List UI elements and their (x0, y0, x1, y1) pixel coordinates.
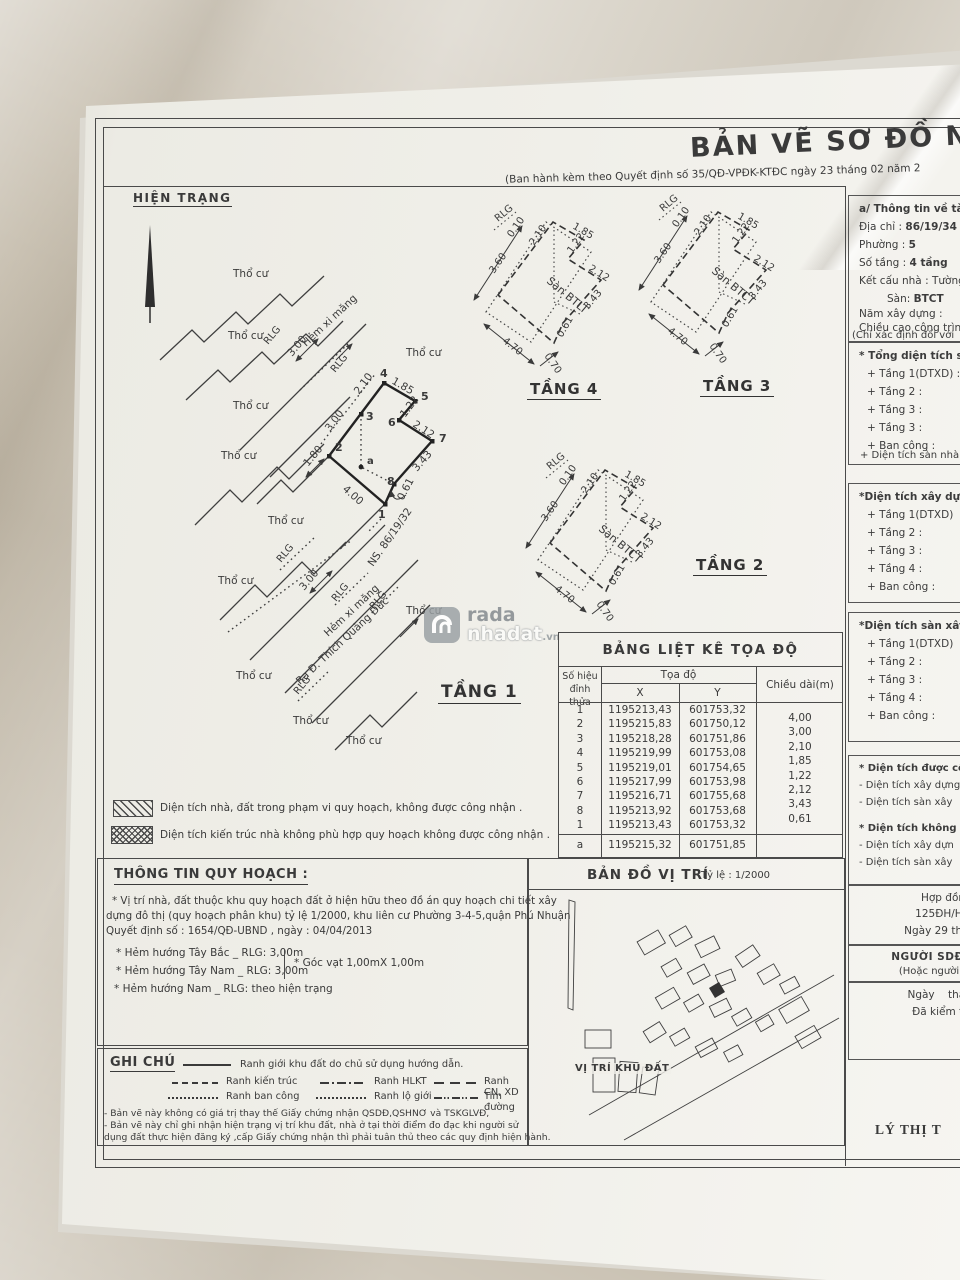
map-site-label: VỊ TRÍ KHU ĐẤT (573, 1063, 671, 1074)
col-header-len: Chiều dài(m) (756, 679, 844, 691)
watermark: rada nhadat.vn (424, 606, 560, 644)
svg-text:3.60: 3.60 (487, 251, 509, 276)
svg-text:RLG: RLG (262, 324, 283, 347)
land-use-labels: Thổ cư Thổ cư Thổ cư Thổ cư Thổ cư Thổ c… (217, 267, 443, 747)
watermark-logo-icon (424, 607, 460, 643)
s5-title: * Diện tích không đ (859, 820, 960, 837)
north-arrow-icon (145, 225, 155, 323)
svg-text:2.10: 2.10 (527, 223, 549, 248)
svg-text:7: 7 (439, 432, 447, 445)
s2-title: *Diện tích xây dựng (859, 488, 960, 506)
svg-text:RLG: RLG (275, 542, 296, 565)
svg-text:3.60: 3.60 (652, 241, 674, 266)
quy-hoach-bullet-2: * Hẻm hướng Tây Nam _ RLG: 3,00m (116, 965, 308, 977)
line-sample-dashdot (320, 1082, 366, 1084)
svg-text:Thổ cư: Thổ cư (217, 574, 255, 587)
ghi-chu-note-3: dụng đất thực hiện đăng ký ,cấp Giấy chứ… (104, 1132, 551, 1143)
panel-thong-tin-tai-san: a/ Thông tin về tài sản Địa chỉ : 86/19/… (848, 195, 960, 342)
svg-text:0.70: 0.70 (707, 341, 729, 366)
svg-text:1.22: 1.22 (398, 394, 422, 420)
svg-text:2.12: 2.12 (410, 418, 436, 441)
table-row: 61195217,99601753,98 (559, 776, 756, 790)
table-footer-row: a 1195215,32 601751,85 (559, 839, 756, 851)
line-sample-solid (183, 1064, 231, 1066)
length-values: 4,00 3,00 2,10 1,85 1,22 2,12 3,43 0,61 (756, 712, 844, 827)
ghi-chu-title: GHI CHÚ (110, 1055, 175, 1072)
legend-tim-duong: Tim đường (484, 1091, 527, 1113)
legend-ranh-kien-truc: Ranh kiến trúc (226, 1076, 297, 1087)
table-row: 11195213,43601753,32 (559, 819, 756, 833)
label-tang1: TẦNG 1 (438, 682, 521, 704)
label-tang4: TẦNG 4 (527, 380, 601, 400)
svg-text:Thổ cư: Thổ cư (220, 449, 258, 462)
svg-text:Thổ cư: Thổ cư (235, 669, 273, 682)
panel-cong-nhan: * Diện tích được công - Diện tích xây dự… (848, 755, 960, 885)
svg-text:RLG: RLG (329, 352, 350, 375)
quy-hoach-bullet-3: * Hẻm hướng Nam _ RLG: theo hiện trạng (114, 983, 333, 995)
svg-text:1: 1 (378, 508, 386, 521)
table-rows: 11195213,43601753,32 21195215,83601750,1… (559, 704, 756, 834)
svg-text:Ra Đ. Thích Quảng Đức: Ra Đ. Thích Quảng Đức (294, 595, 392, 687)
line-sample-longdash (434, 1082, 478, 1084)
svg-text:4.00: 4.00 (340, 483, 366, 507)
hatch-sample-2 (111, 826, 153, 844)
svg-text:Sàn BTCT: Sàn BTCT (596, 522, 645, 566)
svg-text:6: 6 (388, 416, 396, 429)
svg-text:0.10: 0.10 (505, 215, 527, 240)
plot-dimensions: 4.00 3.00 2.10 1.85 1.22 2.12 3.43 0.61 … (285, 333, 436, 593)
svg-text:3.00: 3.00 (323, 408, 347, 434)
coordinate-table: BẢNG LIỆT KÊ TỌA ĐỘ Số hiệuđỉnh thửa Tọa… (558, 632, 843, 858)
svg-text:3.43: 3.43 (410, 448, 434, 474)
svg-text:Thổ cư: Thổ cư (405, 346, 443, 359)
map-scale: Tỷ lệ : 1/2000 (701, 870, 770, 881)
panel-nguoi-sdd: NGƯỜI SDĐ,CHỦ (Hoặc người đại d (848, 945, 960, 982)
table-row: 51195219,01601754,65 (559, 762, 756, 776)
panel-dien-tich-san: *Diện tích sàn xây + Tầng 1(DTXD) + Tầng… (848, 612, 960, 742)
svg-text:2.12: 2.12 (586, 263, 611, 284)
svg-text:0.10: 0.10 (670, 205, 692, 230)
svg-text:0.10: 0.10 (557, 463, 579, 488)
panel-hop-dong: Hợp đồn 125ĐH/HĐ Ngày 29 tháng (848, 885, 960, 945)
quy-hoach-bullet-goc-vat: * Góc vạt 1,00mX 1,00m (294, 957, 424, 969)
svg-text:2.10: 2.10 (352, 371, 376, 397)
line-sample-dash (172, 1082, 218, 1084)
svg-text:Sàn BTLT: Sàn BTLT (544, 274, 591, 316)
svg-text:Thổ cư: Thổ cư (292, 714, 330, 727)
panel-tong-dien-tich: * Tổng diện tích sàn + Tầng 1(DTXD) : + … (848, 342, 960, 465)
table-row: 81195213,92601753,68 (559, 805, 756, 819)
check-line-2: Đã kiểm tra (849, 1004, 960, 1021)
svg-text:4.70: 4.70 (552, 584, 576, 606)
hatch-legend-1: Diện tích nhà, đất trong phạm vi quy hoạ… (160, 802, 522, 814)
panel-dien-tich-xay-dung: *Diện tích xây dựng + Tầng 1(DTXD) + Tần… (848, 483, 960, 603)
floor-plan-tang2: 1.85 2.10 1.22 2.12 3.43 0.61 0.70 4.70 … (526, 451, 663, 624)
label-tang2: TẦNG 2 (693, 556, 767, 576)
paper-document: BẢN VẼ SƠ ĐỒ NH (Ban hành kèm theo Quyết… (0, 0, 960, 1280)
legend-ranh-gioi: Ranh giới khu đất do chủ sử dụng hướng d… (240, 1059, 463, 1070)
svg-text:4.70: 4.70 (665, 326, 689, 348)
svg-text:Sàn BTCT: Sàn BTCT (709, 264, 758, 308)
panel-kiem-tra: Ngày tháng Đã kiểm tra (848, 982, 960, 1060)
quy-hoach-box: THÔNG TIN QUY HOẠCH : * Vị trí nhà, đất … (97, 858, 528, 1046)
hatch-sample-1 (113, 800, 153, 817)
s1-footer: + Diện tích sàn nhà (860, 450, 959, 461)
signature-name: LÝ THỊ T (875, 1122, 942, 1138)
svg-text:4.70: 4.70 (500, 336, 524, 358)
svg-text:5: 5 (421, 390, 429, 403)
svg-text:0.70: 0.70 (542, 351, 564, 376)
section-a-title: a/ Thông tin về tài sản (859, 200, 960, 218)
svg-text:2: 2 (335, 441, 343, 454)
s3-title: *Diện tích sàn xây (859, 617, 960, 635)
street-map-drawing (529, 890, 844, 1145)
svg-text:0.61: 0.61 (720, 305, 741, 330)
quy-hoach-para-3: Quyết định số : 1654/QĐ-UBND , ngày : 04… (106, 925, 372, 937)
svg-text:0.70: 0.70 (594, 599, 616, 624)
coordinate-table-title: BẢNG LIỆT KÊ TỌA ĐỘ (559, 642, 842, 658)
svg-text:Thổ cư: Thổ cư (267, 514, 305, 527)
map-title: BẢN ĐỒ VỊ TRÍ (587, 867, 709, 883)
quy-hoach-para-1: * Vị trí nhà, đất thuộc khu quy hoạch đấ… (112, 895, 557, 907)
photo-background: BẢN VẼ SƠ ĐỒ NH (Ban hành kèm theo Quyết… (0, 0, 960, 1280)
ghi-chu-note-2: - Bản vẽ này chỉ ghi nhận hiện trạng vị … (104, 1120, 519, 1131)
panel-note: (Chỉ xác định đối với (852, 330, 954, 341)
quy-hoach-para-2: dựng đô thị (quy hoạch phân khu) tỷ lệ 1… (106, 910, 571, 922)
legend-ranh-lo-gioi: Ranh lộ giới (374, 1091, 432, 1102)
svg-text:3: 3 (366, 410, 374, 423)
line-sample-dot-fine (316, 1097, 366, 1099)
right-panel-divider (845, 186, 846, 1166)
s1-title: * Tổng diện tích sàn (859, 347, 960, 365)
svg-text:2.12: 2.12 (751, 253, 776, 274)
table-row: 71195216,71601755,68 (559, 790, 756, 804)
ghi-chu-note-1: - Bản vẽ này không có giá trị thay thế G… (104, 1108, 489, 1119)
svg-text:Hẻm xi măng: Hẻm xi măng (300, 292, 360, 349)
svg-text:2.10: 2.10 (692, 213, 714, 238)
svg-text:0.61: 0.61 (607, 563, 628, 588)
svg-text:Thổ cư: Thổ cư (232, 267, 270, 280)
label-tang3: TẦNG 3 (700, 377, 774, 397)
svg-text:2.12: 2.12 (638, 511, 663, 532)
quy-hoach-bullet-1: * Hẻm hướng Tây Bắc _ RLG: 3,00m (116, 947, 303, 959)
col-header-x: X (601, 687, 679, 699)
hatch-legend-2: Diện tích kiến trúc nhà không phù hợp qu… (160, 829, 550, 841)
col-header-y: Y (679, 687, 756, 699)
contract-line-1: Hợp đồn (849, 890, 960, 906)
legend-ranh-ban-cong: Ranh ban công (226, 1091, 299, 1102)
table-row: 11195213,43601753,32 (559, 704, 756, 718)
svg-text:RLG: RLG (330, 581, 351, 604)
quy-hoach-title: THÔNG TIN QUY HOẠCH : (114, 867, 308, 885)
line-sample-dot (168, 1097, 218, 1099)
s4-title: * Diện tích được công (859, 760, 960, 777)
table-row: 31195218,28601751,86 (559, 733, 756, 747)
svg-text:Thổ cư: Thổ cư (345, 734, 383, 747)
check-line-1: Ngày tháng (849, 987, 960, 1004)
svg-text:4: 4 (380, 367, 388, 380)
location-map-box: BẢN ĐỒ VỊ TRÍ Tỷ lệ : 1/2000 (528, 858, 845, 1146)
sdd-line-1: NGƯỜI SDĐ,CHỦ (849, 950, 960, 965)
svg-text:Thổ cư: Thổ cư (227, 329, 265, 342)
svg-text:a: a (367, 456, 374, 467)
floor-plan-tang3: 1.85 2.10 1.22 2.12 3.43 0.61 0.70 4.70 … (639, 193, 776, 366)
sdd-line-2: (Hoặc người đại d (849, 965, 960, 980)
svg-text:8: 8 (387, 475, 395, 488)
svg-text:Thổ cư: Thổ cư (232, 399, 270, 412)
svg-text:2.10: 2.10 (579, 471, 601, 496)
floor-plan-tang4: 1.85 2.10 1.22 2.12 3.43 0.61 0.70 4.70 … (474, 203, 611, 376)
svg-text:3.60: 3.60 (539, 499, 561, 524)
table-row: 21195215,83601750,12 (559, 718, 756, 732)
table-row: 41195219,99601753,08 (559, 747, 756, 761)
contract-line-3: Ngày 29 tháng (849, 923, 960, 939)
watermark-text-nhadat: nhadat.vn (467, 625, 560, 644)
line-sample-dashdotdot (434, 1097, 478, 1099)
site-location-marker (709, 982, 725, 998)
ghi-chu-box: GHI CHÚ Ranh giới khu đất do chủ sử dụng… (97, 1048, 528, 1146)
col-header-toado: Tọa độ (601, 669, 756, 681)
svg-text:0.61: 0.61 (555, 315, 576, 340)
contract-line-2: 125ĐH/HĐ (849, 906, 960, 922)
legend-ranh-hlkt: Ranh HLKT (374, 1076, 427, 1087)
